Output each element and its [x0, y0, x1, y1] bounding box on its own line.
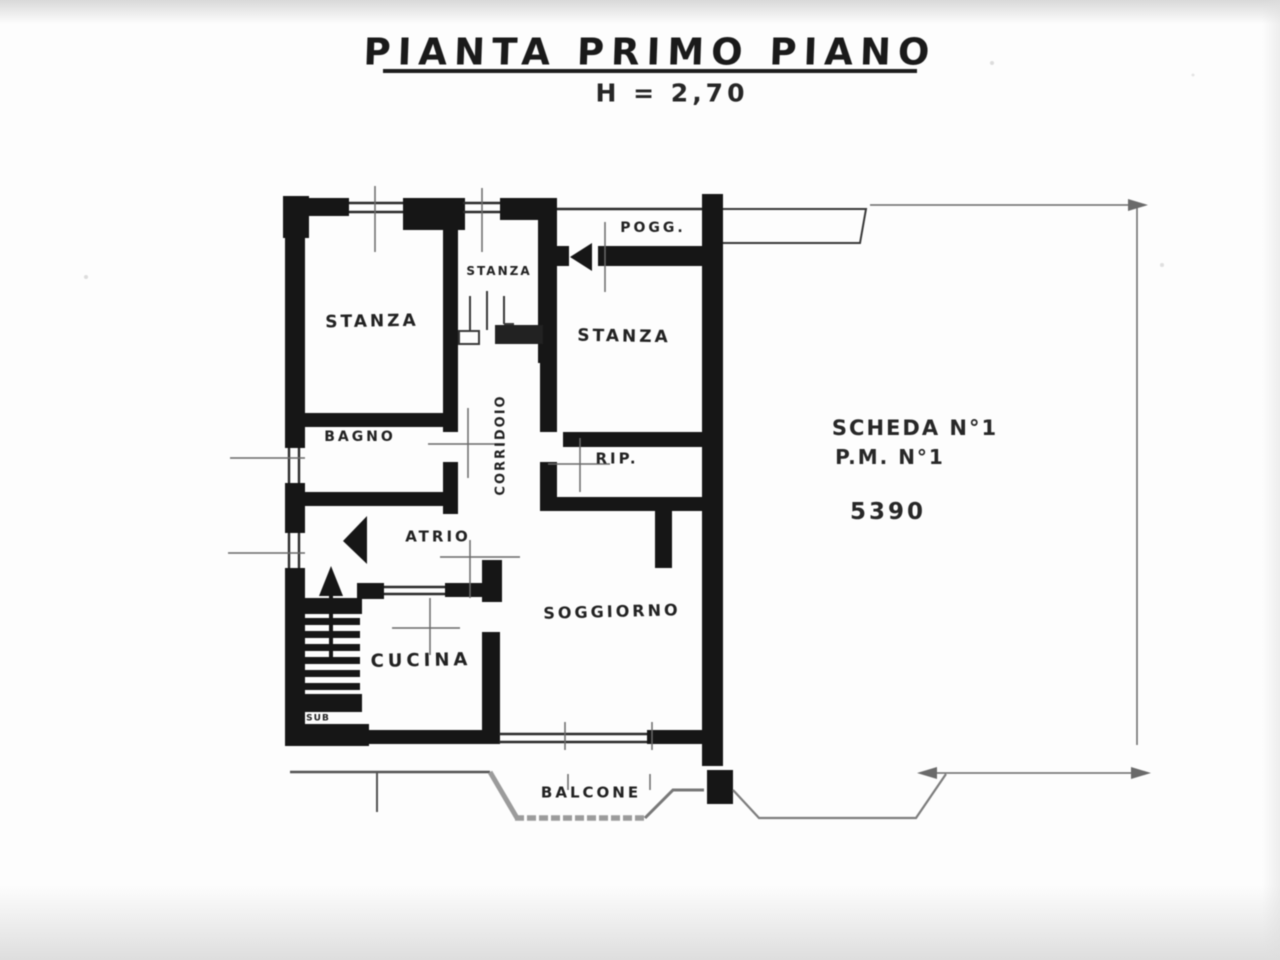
floorplan-svg — [0, 0, 1280, 960]
balcone-right-slant — [645, 790, 704, 818]
neighbor-balcony-outline — [733, 774, 946, 818]
room-label-rip: RIP. — [595, 452, 638, 467]
annotation-scheda: SCHEDA N°1 — [832, 416, 998, 440]
scan-artifact-bottom — [0, 885, 1280, 960]
walls-layer — [283, 194, 733, 804]
room-label-balcone: BALCONE — [541, 786, 641, 801]
room-label-atrio: ATRIO — [405, 530, 471, 545]
annotation-code: 5390 — [850, 499, 926, 525]
scan-artifact-right — [1262, 0, 1280, 960]
pogg-door-leaf — [570, 243, 592, 271]
plan-title: PIANTA PRIMO PIANO — [363, 34, 937, 71]
title-underline — [383, 69, 917, 73]
floorplan-drawing: PIANTA PRIMO PIANO H = 2,70 STANZA STANZ… — [0, 0, 1280, 960]
room-label-sub: SUB — [306, 715, 330, 724]
room-label-bagno: BAGNO — [324, 430, 396, 444]
dimension-lines-layer — [228, 186, 1148, 773]
scan-artifact-top — [0, 0, 1280, 24]
room-label-corridoio: CORRIDOIO — [495, 394, 508, 495]
dimension-arrowheads — [917, 199, 1151, 779]
room-label-stanza-left: STANZA — [325, 313, 419, 332]
annotation-pm: P.M. N°1 — [835, 445, 945, 469]
balcone-left-slant — [490, 772, 517, 818]
scanned-floorplan-page: PIANTA PRIMO PIANO H = 2,70 STANZA STANZ… — [0, 0, 1280, 960]
loggia-outline — [723, 209, 866, 243]
ceiling-height-note: H = 2,70 — [596, 81, 749, 106]
room-label-stanza-small: STANZA — [466, 265, 531, 277]
room-label-pogg: POGG. — [620, 221, 685, 235]
bath-fixture-block — [495, 325, 543, 344]
room-label-cucina: CUCINA — [370, 651, 471, 671]
room-label-stanza-right: STANZA — [577, 328, 671, 347]
room-label-soggiorno: SOGGIORNO — [543, 602, 681, 622]
entry-door-leaf — [343, 516, 367, 564]
